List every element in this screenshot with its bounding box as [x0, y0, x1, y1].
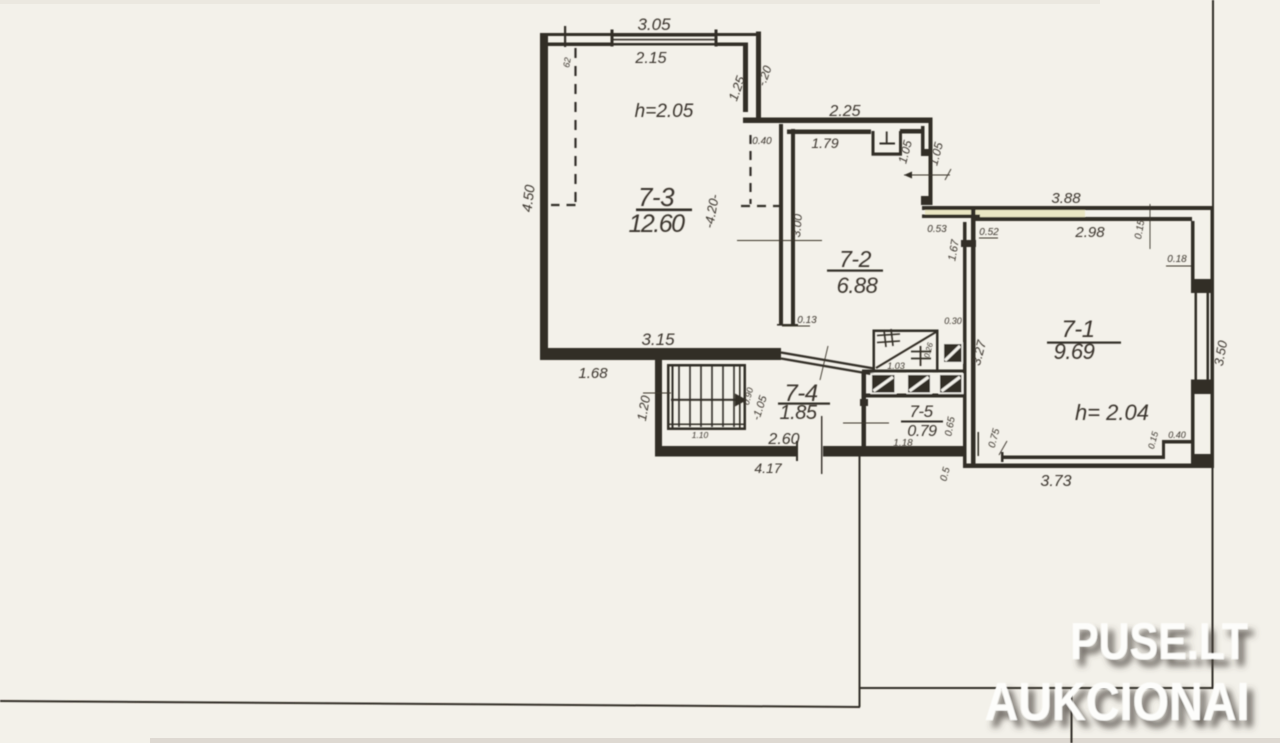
svg-text:7-3: 7-3 — [638, 182, 675, 212]
svg-text:1.85: 1.85 — [780, 402, 818, 424]
svg-text:2.25: 2.25 — [828, 103, 860, 120]
svg-text:4.50: 4.50 — [518, 184, 537, 213]
svg-text:0.52: 0.52 — [979, 227, 999, 238]
svg-text:0.40: 0.40 — [1168, 430, 1186, 440]
svg-text:1.79: 1.79 — [811, 135, 838, 151]
svg-text:2.98: 2.98 — [1074, 224, 1105, 241]
svg-text:PUSE.LT: PUSE.LT — [1070, 613, 1248, 671]
svg-text:3.73: 3.73 — [1040, 473, 1071, 490]
svg-text:0.13: 0.13 — [797, 315, 817, 326]
svg-text:h=2.05: h=2.05 — [635, 101, 694, 122]
svg-text:4.17: 4.17 — [754, 460, 782, 476]
svg-text:12.60: 12.60 — [628, 210, 685, 238]
svg-text:3.00: 3.00 — [789, 213, 805, 238]
svg-text:2.60: 2.60 — [767, 431, 799, 448]
svg-text:1.10: 1.10 — [692, 430, 709, 440]
svg-text:0.30: 0.30 — [944, 316, 962, 326]
svg-text:62: 62 — [561, 57, 573, 69]
svg-text:2.15: 2.15 — [634, 50, 666, 67]
svg-text:0.40: 0.40 — [752, 136, 772, 147]
svg-text:1.03: 1.03 — [887, 361, 905, 371]
svg-text:0.53: 0.53 — [927, 224, 947, 235]
svg-text:0.18: 0.18 — [1167, 254, 1187, 265]
svg-text:9.69: 9.69 — [1054, 339, 1095, 364]
svg-text:6.88: 6.88 — [837, 273, 879, 298]
svg-text:7-5: 7-5 — [909, 402, 933, 421]
svg-text:AUKCIONAI: AUKCIONAI — [985, 672, 1250, 732]
svg-text:7-2: 7-2 — [839, 246, 871, 272]
svg-text:3.88: 3.88 — [1051, 190, 1081, 207]
svg-text:h= 2.04: h= 2.04 — [1075, 400, 1149, 425]
svg-text:1.18: 1.18 — [893, 438, 913, 449]
svg-text:3.15: 3.15 — [641, 330, 675, 349]
svg-text:3.05: 3.05 — [637, 15, 671, 34]
svg-text:1.68: 1.68 — [578, 365, 608, 382]
